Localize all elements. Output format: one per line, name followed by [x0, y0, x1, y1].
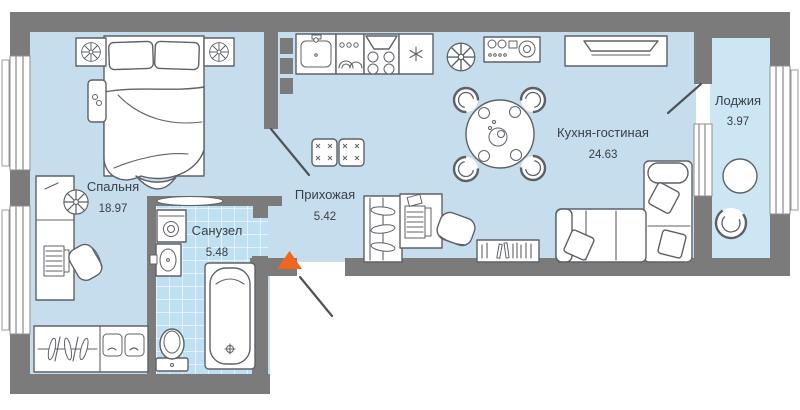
laptop-icon — [44, 246, 69, 276]
bathroom-shelf — [157, 197, 223, 206]
bedroom-window2-icon — [2, 206, 30, 334]
kitchen-counter-icon — [336, 34, 364, 74]
kitchen-living-area: 24.63 — [589, 149, 618, 161]
floor-plan-canvas: Спальня 18.97 Прихожая 5.42 Санузел 5.48… — [0, 0, 800, 410]
plate-icon — [489, 128, 507, 146]
bathroom-area: 5.48 — [206, 247, 228, 259]
bed-icon — [104, 36, 204, 189]
cup-icon — [479, 108, 490, 119]
entrance-door-leaf — [300, 277, 332, 316]
fridge-icon — [399, 34, 433, 74]
fan-plant-icon — [82, 43, 101, 62]
pouf-icon — [339, 139, 364, 166]
loggia-partition-window-icon — [694, 124, 712, 196]
stereo-icon — [484, 37, 540, 62]
folded-clothes-icon — [103, 334, 122, 356]
wardrobe-icon — [34, 326, 148, 372]
wardrobe-icon — [364, 196, 402, 262]
laptop-icon — [405, 206, 431, 238]
bedroom-area: 18.97 — [99, 203, 128, 215]
plant-icon — [64, 190, 88, 214]
stove-icon — [364, 34, 399, 74]
nightstand-icon — [204, 38, 234, 66]
loggia-window-icon — [770, 66, 798, 214]
bookshelf-icon — [477, 240, 539, 262]
bedroom-window-icon — [2, 56, 30, 170]
ventilation-shaft — [280, 38, 293, 94]
cup-icon — [510, 107, 521, 118]
faucet-icon — [150, 255, 157, 264]
pouf-icon — [312, 139, 337, 166]
tv-icon — [565, 36, 667, 66]
washing-machine-icon — [157, 210, 186, 242]
bathtub-icon — [205, 263, 255, 369]
floor-plan: Спальня 18.97 Прихожая 5.42 Санузел 5.48… — [0, 0, 800, 410]
desk-icon — [400, 194, 442, 248]
loggia-table-icon — [723, 159, 757, 193]
kitchen-living-label: Кухня-гостиная — [557, 125, 649, 140]
bathroom-label: Санузел — [192, 223, 243, 238]
folded-clothes-icon — [125, 334, 144, 356]
hallway-label: Прихожая — [295, 187, 355, 202]
cup-icon — [479, 151, 490, 162]
bench-icon — [88, 80, 106, 122]
hallway-area: 5.42 — [314, 211, 336, 223]
kitchen-sink-icon — [296, 34, 336, 74]
plant-icon — [447, 43, 475, 71]
fan-plant-icon — [210, 43, 229, 62]
bedroom-label: Спальня — [87, 179, 139, 194]
loggia-area: 3.97 — [727, 116, 749, 128]
sofa-pillow-icon — [657, 229, 686, 258]
cup-icon — [511, 150, 522, 161]
dining-table-icon — [466, 100, 534, 168]
loggia-label: Лоджия — [715, 93, 761, 108]
bathroom-door-threshold — [253, 218, 268, 256]
pillow-icon — [155, 41, 200, 70]
pillow-icon — [109, 41, 154, 70]
nightstand-icon — [76, 38, 106, 66]
